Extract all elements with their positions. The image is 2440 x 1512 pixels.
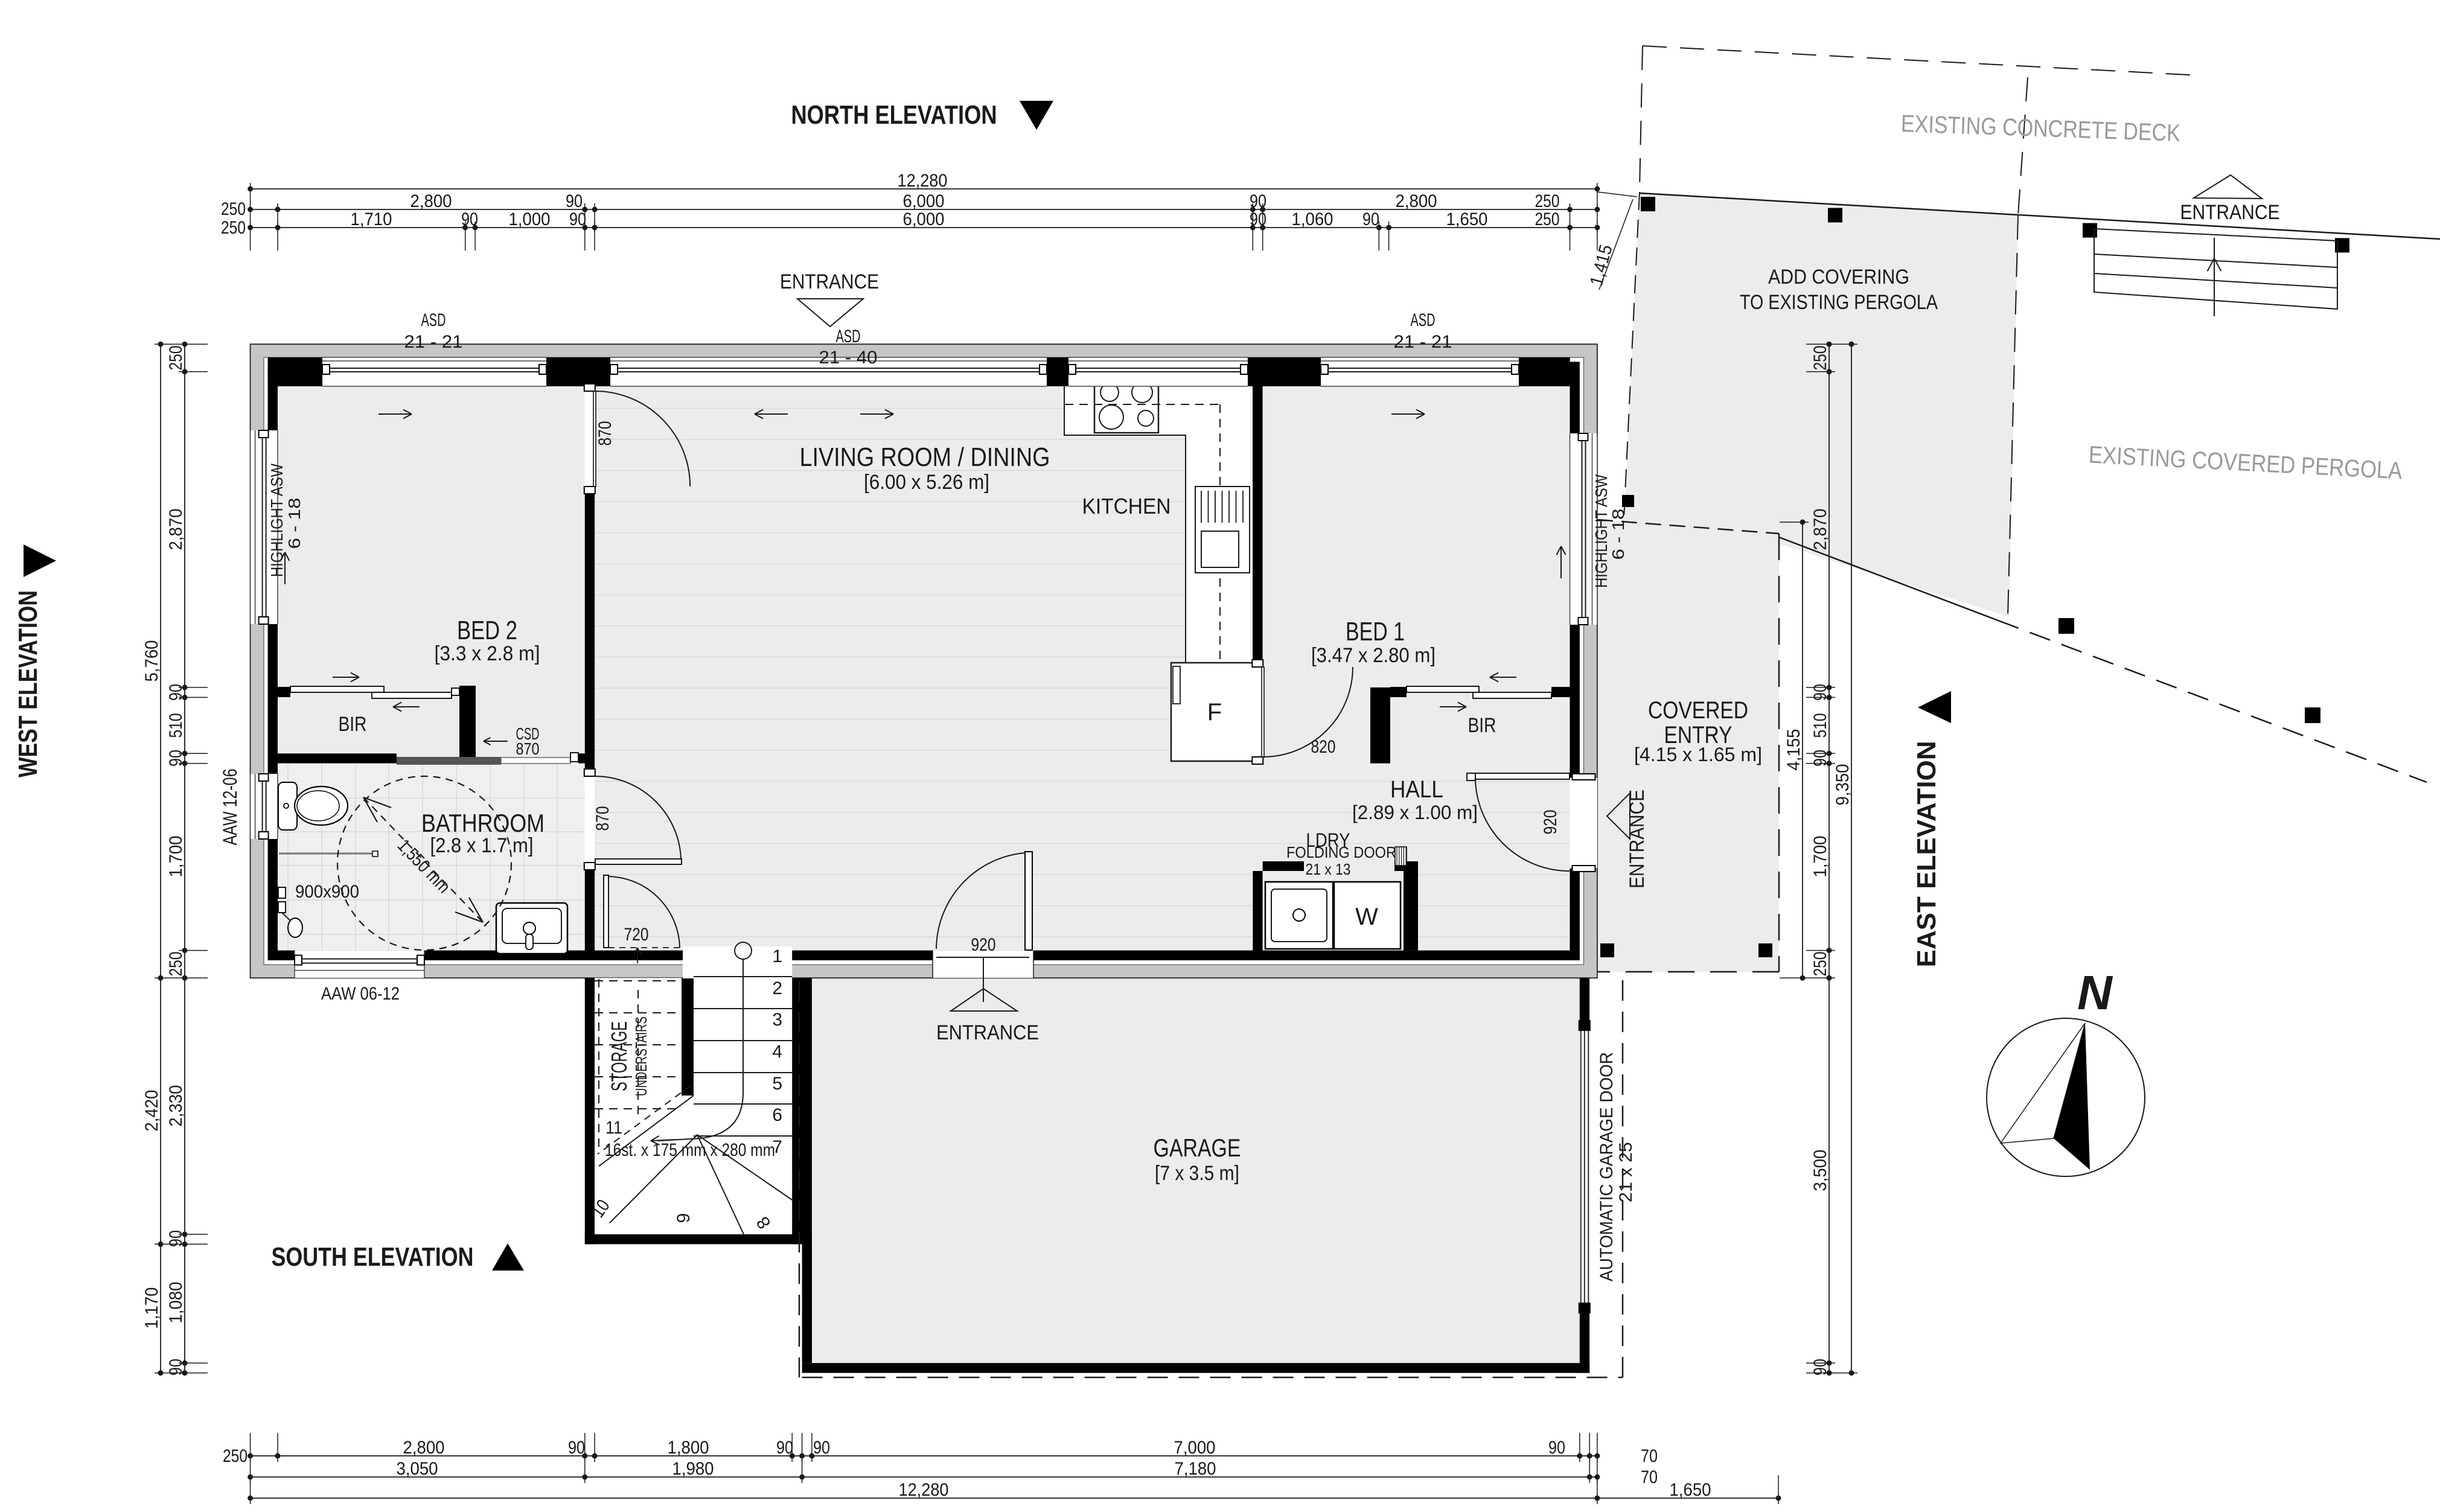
svg-text:5,760: 5,760	[142, 640, 162, 682]
svg-text:1,700: 1,700	[166, 836, 186, 878]
svg-text:11: 11	[605, 1118, 622, 1138]
svg-text:21 x 25: 21 x 25	[1616, 1142, 1636, 1202]
svg-text:BIR: BIR	[339, 713, 367, 736]
svg-text:[2.89 x 1.00 m]: [2.89 x 1.00 m]	[1352, 802, 1478, 823]
svg-text:1,980: 1,980	[672, 1459, 714, 1479]
svg-text:90: 90	[568, 1438, 585, 1458]
svg-text:ENTRANCE: ENTRANCE	[2180, 201, 2280, 224]
svg-text:2,800: 2,800	[403, 1438, 445, 1458]
svg-text:6: 6	[772, 1105, 782, 1125]
svg-text:2,420: 2,420	[142, 1090, 162, 1132]
svg-text:1,650: 1,650	[1670, 1480, 1711, 1500]
svg-text:3,500: 3,500	[1810, 1150, 1830, 1191]
svg-text:870: 870	[593, 806, 613, 831]
svg-text:6,000: 6,000	[903, 209, 945, 229]
svg-text:1,080: 1,080	[166, 1282, 186, 1324]
svg-text:4,155: 4,155	[1784, 729, 1804, 771]
svg-text:90: 90	[461, 209, 478, 229]
svg-text:1,800: 1,800	[668, 1438, 709, 1458]
svg-text:N: N	[2077, 966, 2113, 1019]
svg-text:4: 4	[772, 1042, 782, 1062]
svg-text:BED 1: BED 1	[1346, 617, 1405, 646]
svg-text:HALL: HALL	[1390, 776, 1443, 803]
svg-text:21 - 21: 21 - 21	[404, 332, 463, 352]
svg-text:[6.00 x 5.26 m]: [6.00 x 5.26 m]	[864, 471, 989, 494]
svg-text:SOUTH ELEVATION: SOUTH ELEVATION	[272, 1242, 474, 1272]
svg-text:WEST ELEVATION: WEST ELEVATION	[13, 590, 43, 777]
svg-text:1,710: 1,710	[351, 209, 392, 229]
svg-text:[2.8 x 1.7 m]: [2.8 x 1.7 m]	[430, 834, 534, 857]
svg-text:920: 920	[971, 935, 996, 955]
svg-text:NORTH ELEVATION: NORTH ELEVATION	[791, 100, 997, 130]
svg-text:ADD COVERING: ADD COVERING	[1768, 266, 1909, 289]
svg-text:F: F	[1207, 699, 1222, 726]
svg-text:[3.47 x 2.80 m]: [3.47 x 2.80 m]	[1311, 644, 1436, 667]
svg-text:250: 250	[1535, 209, 1560, 229]
svg-text:21 - 40: 21 - 40	[819, 348, 878, 368]
svg-text:[7 x 3.5 m]: [7 x 3.5 m]	[1155, 1162, 1239, 1185]
svg-text:870: 870	[516, 739, 540, 758]
svg-text:ASD: ASD	[1411, 310, 1436, 330]
svg-text:BIR: BIR	[1468, 714, 1496, 737]
svg-text:ASD: ASD	[421, 310, 446, 330]
svg-text:6 - 18: 6 - 18	[285, 498, 304, 549]
svg-text:90: 90	[1810, 750, 1830, 767]
svg-text:250: 250	[1535, 191, 1560, 211]
svg-text:FOLDING DOOR: FOLDING DOOR	[1286, 843, 1396, 861]
svg-text:90: 90	[776, 1438, 793, 1458]
svg-text:12,280: 12,280	[898, 171, 948, 191]
svg-text:KITCHEN: KITCHEN	[1082, 494, 1171, 518]
svg-text:250: 250	[221, 218, 246, 238]
svg-text:1,000: 1,000	[509, 209, 551, 229]
svg-text:900x900: 900x900	[295, 882, 359, 902]
svg-text:AUTOMATIC GARAGE DOOR: AUTOMATIC GARAGE DOOR	[1597, 1052, 1617, 1281]
svg-text:2,870: 2,870	[166, 509, 186, 550]
svg-text:90: 90	[1250, 191, 1266, 211]
svg-text:250: 250	[1810, 952, 1830, 977]
svg-text:21 - 21: 21 - 21	[1394, 332, 1452, 352]
svg-text:ENTRANCE: ENTRANCE	[780, 270, 879, 293]
svg-text:250: 250	[166, 952, 186, 977]
svg-text:ASD: ASD	[836, 327, 861, 346]
svg-text:COVERED: COVERED	[1648, 697, 1748, 724]
svg-text:HIGHLIGHT ASW: HIGHLIGHT ASW	[267, 464, 286, 577]
svg-text:9: 9	[674, 1213, 694, 1223]
svg-text:90: 90	[1250, 209, 1266, 229]
svg-text:21 x 13: 21 x 13	[1306, 860, 1351, 878]
svg-text:[4.15 x 1.65 m]: [4.15 x 1.65 m]	[1634, 744, 1762, 765]
svg-text:3: 3	[772, 1010, 782, 1030]
svg-text:BATHROOM: BATHROOM	[421, 809, 545, 837]
svg-text:EAST ELEVATION: EAST ELEVATION	[1912, 741, 1941, 968]
svg-text:90: 90	[1810, 684, 1830, 701]
svg-text:W: W	[1355, 904, 1378, 930]
svg-text:2: 2	[772, 978, 782, 998]
svg-text:AAW 06-12: AAW 06-12	[321, 984, 400, 1004]
svg-text:90: 90	[1548, 1438, 1565, 1458]
svg-text:2,870: 2,870	[1810, 509, 1830, 550]
svg-text:90: 90	[166, 684, 186, 701]
svg-text:1,170: 1,170	[142, 1287, 162, 1329]
svg-text:9,350: 9,350	[1833, 764, 1853, 806]
svg-text:HIGHLIGHT ASW: HIGHLIGHT ASW	[1592, 474, 1611, 588]
svg-text:90: 90	[566, 191, 583, 211]
svg-text:2,800: 2,800	[410, 191, 452, 211]
svg-text:7,000: 7,000	[1174, 1438, 1216, 1458]
svg-text:2,330: 2,330	[166, 1085, 186, 1127]
svg-text:250: 250	[221, 199, 246, 219]
svg-text:70: 70	[1641, 1467, 1658, 1487]
svg-text:90: 90	[166, 1230, 186, 1247]
svg-text:UNDERSTAIRS: UNDERSTAIRS	[632, 1016, 650, 1096]
svg-text:90: 90	[1362, 209, 1379, 229]
svg-text:90: 90	[166, 1359, 186, 1376]
svg-text:90: 90	[569, 209, 586, 229]
svg-text:GARAGE: GARAGE	[1154, 1134, 1241, 1162]
svg-text:1,700: 1,700	[1810, 836, 1830, 878]
svg-text:5: 5	[772, 1074, 782, 1094]
svg-text:[3.3 x 2.8 m]: [3.3 x 2.8 m]	[435, 642, 540, 665]
svg-text:90: 90	[166, 750, 186, 767]
svg-text:250: 250	[1810, 346, 1830, 371]
svg-text:7,180: 7,180	[1175, 1459, 1216, 1479]
svg-text:LIVING ROOM / DINING: LIVING ROOM / DINING	[800, 442, 1050, 472]
svg-text:TO EXISTING PERGOLA: TO EXISTING PERGOLA	[1740, 291, 1938, 314]
svg-text:510: 510	[1810, 713, 1830, 738]
svg-text:1,060: 1,060	[1292, 209, 1333, 229]
svg-text:3,050: 3,050	[397, 1459, 438, 1479]
svg-text:6,000: 6,000	[903, 191, 945, 211]
svg-text:2,800: 2,800	[1396, 191, 1437, 211]
svg-text:870: 870	[595, 421, 615, 446]
svg-text:510: 510	[166, 713, 186, 738]
svg-text:1,650: 1,650	[1446, 209, 1488, 229]
svg-text:16st. x 175 mm x 280 mm: 16st. x 175 mm x 280 mm	[605, 1140, 775, 1160]
svg-text:920: 920	[1541, 810, 1560, 835]
svg-text:820: 820	[1311, 737, 1336, 757]
svg-text:STORAGE: STORAGE	[607, 1021, 631, 1091]
svg-text:70: 70	[1641, 1446, 1658, 1466]
svg-text:ENTRANCE: ENTRANCE	[936, 1021, 1039, 1044]
svg-text:720: 720	[624, 925, 649, 945]
svg-text:90: 90	[1810, 1359, 1830, 1376]
svg-text:BED 2: BED 2	[457, 616, 517, 645]
svg-text:90: 90	[813, 1438, 830, 1458]
svg-text:AAW 12-06: AAW 12-06	[219, 769, 241, 846]
svg-text:1: 1	[772, 946, 782, 966]
svg-text:250: 250	[223, 1446, 248, 1466]
svg-text:250: 250	[166, 346, 186, 371]
svg-text:12,280: 12,280	[899, 1480, 949, 1500]
svg-text:6 - 18: 6 - 18	[1609, 509, 1627, 560]
